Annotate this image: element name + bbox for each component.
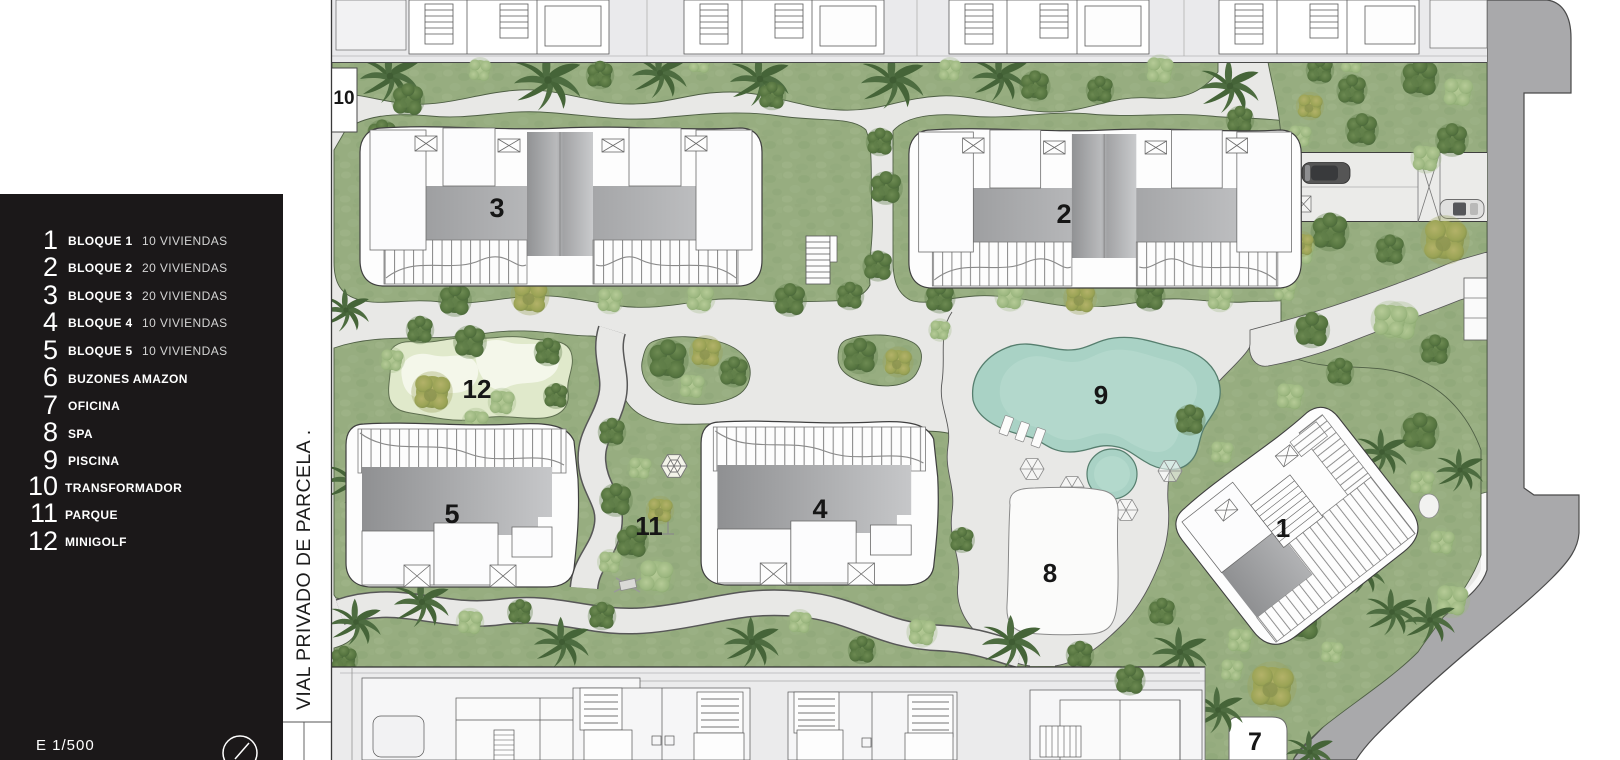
svg-text:10: 10	[333, 88, 354, 109]
svg-text:10 VIVIENDAS: 10 VIVIENDAS	[142, 316, 228, 330]
svg-text:10 VIVIENDAS: 10 VIVIENDAS	[142, 234, 228, 248]
svg-text:6: 6	[43, 362, 58, 392]
svg-text:8: 8	[1043, 558, 1057, 588]
svg-text:OFICINA: OFICINA	[68, 399, 120, 413]
svg-text:3: 3	[489, 193, 504, 223]
svg-text:7: 7	[1248, 728, 1262, 756]
svg-text:10: 10	[28, 471, 58, 501]
svg-text:12: 12	[463, 374, 492, 404]
svg-text:7: 7	[43, 390, 58, 420]
svg-text:VIAL PRIVADO DE PARCELA .: VIAL PRIVADO DE PARCELA .	[293, 429, 315, 710]
svg-text:5: 5	[43, 335, 58, 365]
svg-text:2: 2	[43, 252, 58, 282]
svg-text:MINIGOLF: MINIGOLF	[65, 535, 127, 549]
svg-text:9: 9	[1094, 380, 1108, 410]
svg-text:PARQUE: PARQUE	[65, 508, 118, 522]
svg-text:BLOQUE 4: BLOQUE 4	[68, 316, 133, 330]
svg-text:BUZONES AMAZON: BUZONES AMAZON	[68, 372, 188, 386]
svg-text:SPA: SPA	[68, 427, 93, 441]
svg-text:1: 1	[43, 225, 58, 255]
svg-text:1: 1	[1276, 513, 1290, 543]
svg-text:BLOQUE 1: BLOQUE 1	[68, 234, 133, 248]
svg-text:BLOQUE 2: BLOQUE 2	[68, 261, 133, 275]
svg-text:E 1/500: E 1/500	[36, 737, 95, 754]
svg-text:2: 2	[1056, 199, 1071, 229]
svg-text:3: 3	[43, 280, 58, 310]
svg-text:12: 12	[28, 526, 58, 556]
svg-text:20 VIVIENDAS: 20 VIVIENDAS	[142, 261, 228, 275]
svg-text:TRANSFORMADOR: TRANSFORMADOR	[65, 481, 182, 495]
svg-text:11: 11	[30, 498, 58, 528]
svg-text:PISCINA: PISCINA	[68, 454, 119, 468]
svg-text:8: 8	[43, 417, 58, 447]
svg-text:4: 4	[43, 307, 58, 337]
svg-text:BLOQUE 3: BLOQUE 3	[68, 289, 133, 303]
svg-text:BLOQUE 5: BLOQUE 5	[68, 344, 133, 358]
svg-text:11: 11	[635, 511, 663, 541]
svg-text:4: 4	[812, 494, 827, 524]
svg-text:20 VIVIENDAS: 20 VIVIENDAS	[142, 289, 228, 303]
svg-text:5: 5	[444, 499, 459, 529]
svg-text:10 VIVIENDAS: 10 VIVIENDAS	[142, 344, 228, 358]
